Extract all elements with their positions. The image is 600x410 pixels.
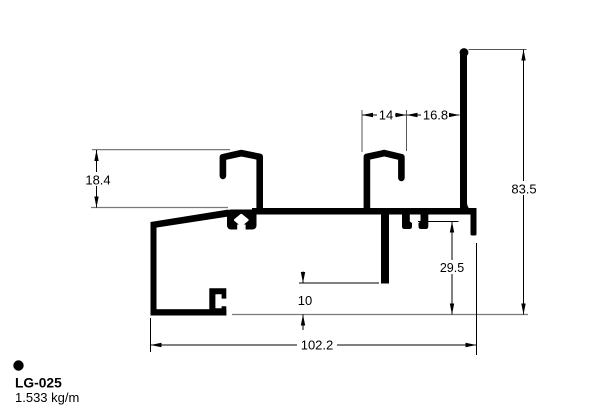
- svg-text:18.4: 18.4: [85, 173, 110, 188]
- svg-text:83.5: 83.5: [511, 182, 536, 197]
- svg-text:LG-025: LG-025: [15, 375, 62, 390]
- svg-text:29.5: 29.5: [440, 261, 464, 275]
- svg-text:102.2: 102.2: [301, 337, 334, 352]
- svg-text:16.8: 16.8: [423, 107, 448, 122]
- svg-text:1.533 kg/m: 1.533 kg/m: [15, 390, 79, 405]
- svg-text:10: 10: [298, 293, 312, 308]
- svg-text:14: 14: [379, 107, 393, 122]
